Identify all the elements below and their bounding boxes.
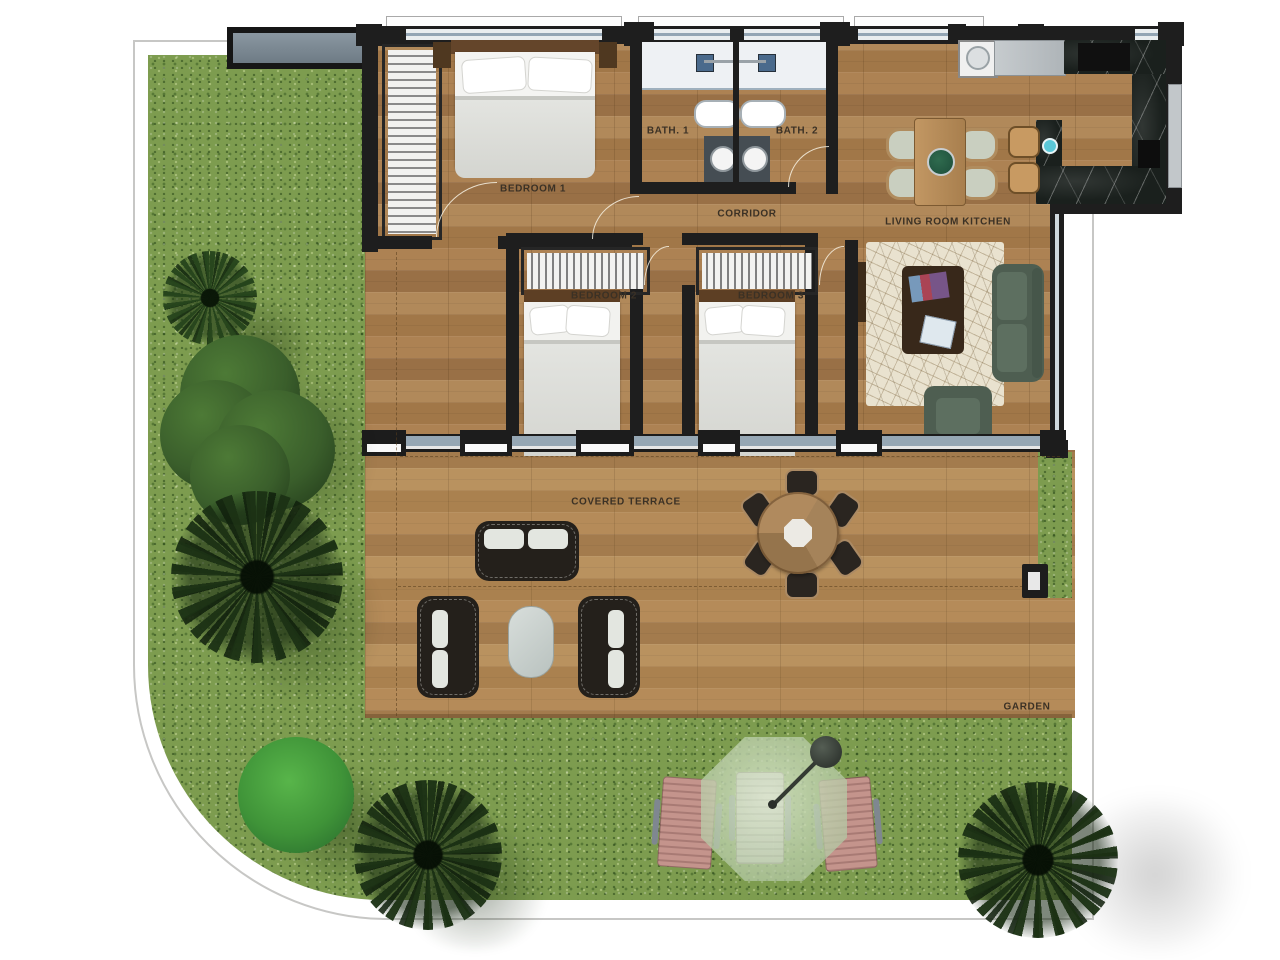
bed3-pillow — [740, 305, 786, 338]
bar-stool — [1008, 162, 1040, 194]
skylight-window — [227, 27, 375, 69]
wall-bedroom2 — [630, 285, 643, 452]
table-centerpiece — [927, 148, 955, 176]
oven — [1138, 140, 1160, 168]
shower-fixture — [696, 54, 714, 72]
stitch — [420, 599, 476, 695]
armchair-cushion — [432, 610, 448, 648]
glass-wall-right — [1055, 214, 1059, 444]
entry-door — [1168, 84, 1182, 188]
room-label-bedroom2: BEDROOM 2 — [571, 291, 637, 302]
window-bath1 — [650, 29, 730, 40]
palm-tree-small — [163, 251, 257, 345]
palm-tree-bottom-right — [958, 782, 1118, 938]
wall-left — [362, 26, 378, 252]
sofa-cushion — [997, 324, 1027, 372]
room-label-covered-terrace: COVERED TERRACE — [571, 497, 681, 508]
bright-bush — [238, 737, 354, 853]
wall-bedroom3 — [682, 233, 695, 245]
wall-step — [1056, 204, 1182, 214]
armchair-cushion — [608, 650, 624, 688]
deck-edge — [365, 714, 1072, 718]
post-notch — [703, 444, 735, 452]
coffee-table-books — [908, 271, 949, 302]
bed1-duvet — [455, 96, 595, 178]
glass-post — [576, 430, 634, 456]
glass-post — [460, 430, 512, 456]
glass-post — [836, 430, 882, 456]
palm-tree-bottom — [354, 780, 502, 930]
wall-bath-left — [630, 26, 642, 194]
post-notch — [581, 444, 629, 452]
wardrobe-bedroom3 — [696, 247, 818, 295]
bed1-pillow — [461, 56, 527, 94]
stove — [1078, 43, 1130, 71]
sink-2 — [742, 146, 768, 172]
terrace-boundary — [396, 252, 397, 716]
terrace-chair — [785, 571, 819, 599]
deck-fixture-inner — [1028, 572, 1040, 590]
room-label-corridor: CORRIDOR — [717, 209, 776, 220]
bed2-pillow — [565, 305, 611, 338]
wall-bedroom2 — [506, 233, 519, 452]
wall-bedroom3 — [682, 285, 695, 452]
terrace-boundary — [400, 456, 1060, 457]
post-notch — [841, 444, 877, 452]
bed3-pillow — [704, 304, 747, 336]
parasol-base-dot — [768, 800, 777, 809]
wall-bedroom3 — [682, 233, 818, 245]
bar-stool — [1008, 126, 1040, 158]
bed2-pillow — [529, 304, 572, 336]
nightstand — [433, 42, 451, 68]
parasol-weight-disc — [810, 736, 842, 768]
window-bedroom1 — [406, 29, 602, 40]
room-label-bath2: BATH. 2 — [776, 126, 818, 137]
steel-counter — [994, 40, 1066, 76]
wardrobe-bedroom1 — [382, 44, 442, 240]
room-label-bedroom3: BEDROOM 3 — [738, 291, 804, 302]
bathtub-2 — [740, 100, 786, 128]
glass-post — [698, 430, 740, 456]
terrace-armchair-left — [417, 596, 479, 698]
palm-tree-left-large — [171, 491, 343, 663]
wall-passage — [845, 240, 858, 452]
wardrobe-bedroom2 — [521, 247, 650, 295]
wall-bath-bottom — [630, 182, 796, 194]
terrace-sofa-cushion — [484, 529, 524, 549]
window-kitchen — [858, 29, 952, 40]
sofa-cushion — [997, 272, 1027, 320]
room-label-bath1: BATH. 1 — [647, 126, 689, 137]
faucet — [1042, 138, 1058, 154]
room-label-living-room-kitchen: LIVING ROOM KITCHEN — [885, 217, 1011, 228]
wall-bath-divider — [733, 42, 739, 194]
room-label-garden: GARDEN — [1004, 702, 1051, 713]
terrace-sofa-cushion — [528, 529, 568, 549]
wall-bedroom1-bottom — [362, 236, 432, 249]
terrace-boundary — [398, 586, 1048, 587]
bed1-pillow — [527, 56, 593, 93]
armchair-cushion — [936, 398, 980, 434]
shower-fixture — [758, 54, 776, 72]
floor-plan-canvas: BEDROOM 1 BATH. 1 BATH. 2 CORRIDOR LIVIN… — [0, 0, 1280, 960]
terrace-side-table — [508, 606, 554, 678]
exterior-white-cut — [1064, 214, 1090, 450]
sofa-back — [1032, 268, 1042, 378]
nightstand — [599, 42, 617, 68]
post-notch — [465, 444, 507, 452]
glass-post — [1040, 430, 1066, 456]
washer-drum — [966, 46, 990, 70]
window-bath2 — [744, 29, 826, 40]
table-lazy-susan — [784, 519, 812, 547]
kitchen-bar-bottom — [1036, 166, 1166, 204]
room-label-bedroom1: BEDROOM 1 — [500, 184, 566, 195]
armchair-cushion — [608, 610, 624, 648]
armchair-cushion — [432, 650, 448, 688]
